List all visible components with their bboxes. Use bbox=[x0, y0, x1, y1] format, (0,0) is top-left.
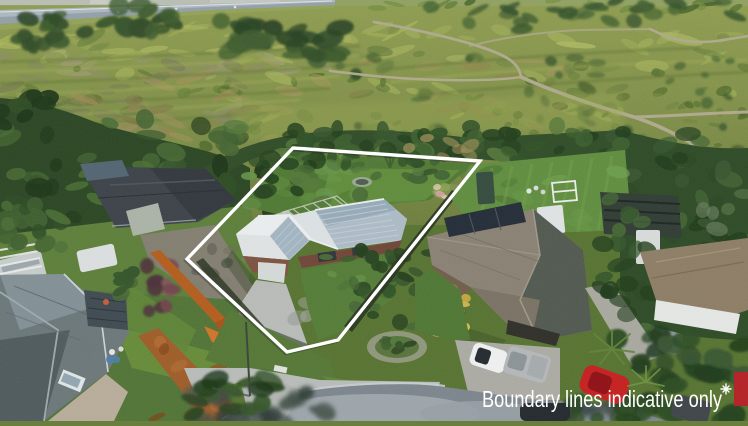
svg-text:Boundary lines indicative only: Boundary lines indicative only bbox=[482, 386, 722, 412]
